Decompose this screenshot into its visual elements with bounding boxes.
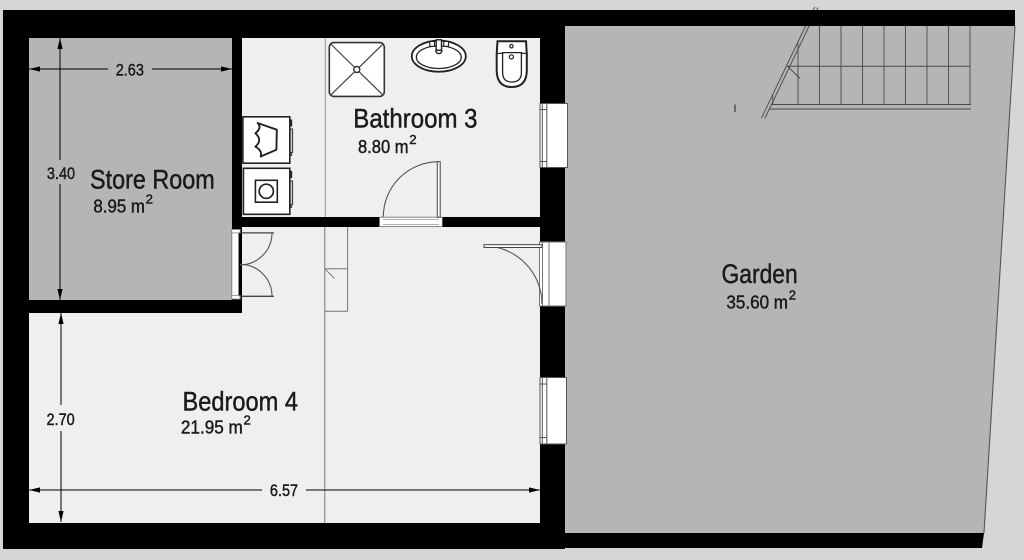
svg-text:2: 2 bbox=[146, 192, 153, 207]
svg-text:Bedroom 4: Bedroom 4 bbox=[183, 386, 299, 416]
svg-text:3.40: 3.40 bbox=[47, 164, 75, 183]
svg-text:8.80 m: 8.80 m bbox=[358, 136, 409, 157]
svg-text:35.60 m: 35.60 m bbox=[726, 292, 788, 313]
svg-text:2.63: 2.63 bbox=[116, 60, 144, 79]
svg-text:2: 2 bbox=[409, 132, 416, 147]
svg-text:Bathroom 3: Bathroom 3 bbox=[353, 103, 477, 133]
svg-text:6.57: 6.57 bbox=[270, 481, 298, 500]
svg-text:2: 2 bbox=[244, 413, 251, 428]
svg-text:8.95 m: 8.95 m bbox=[93, 196, 145, 217]
svg-text:Garden: Garden bbox=[722, 259, 798, 289]
svg-text:21.95 m: 21.95 m bbox=[181, 417, 243, 438]
svg-text:2: 2 bbox=[789, 288, 796, 303]
svg-text:2.70: 2.70 bbox=[47, 410, 75, 429]
svg-text:Store Room: Store Room bbox=[90, 165, 215, 195]
